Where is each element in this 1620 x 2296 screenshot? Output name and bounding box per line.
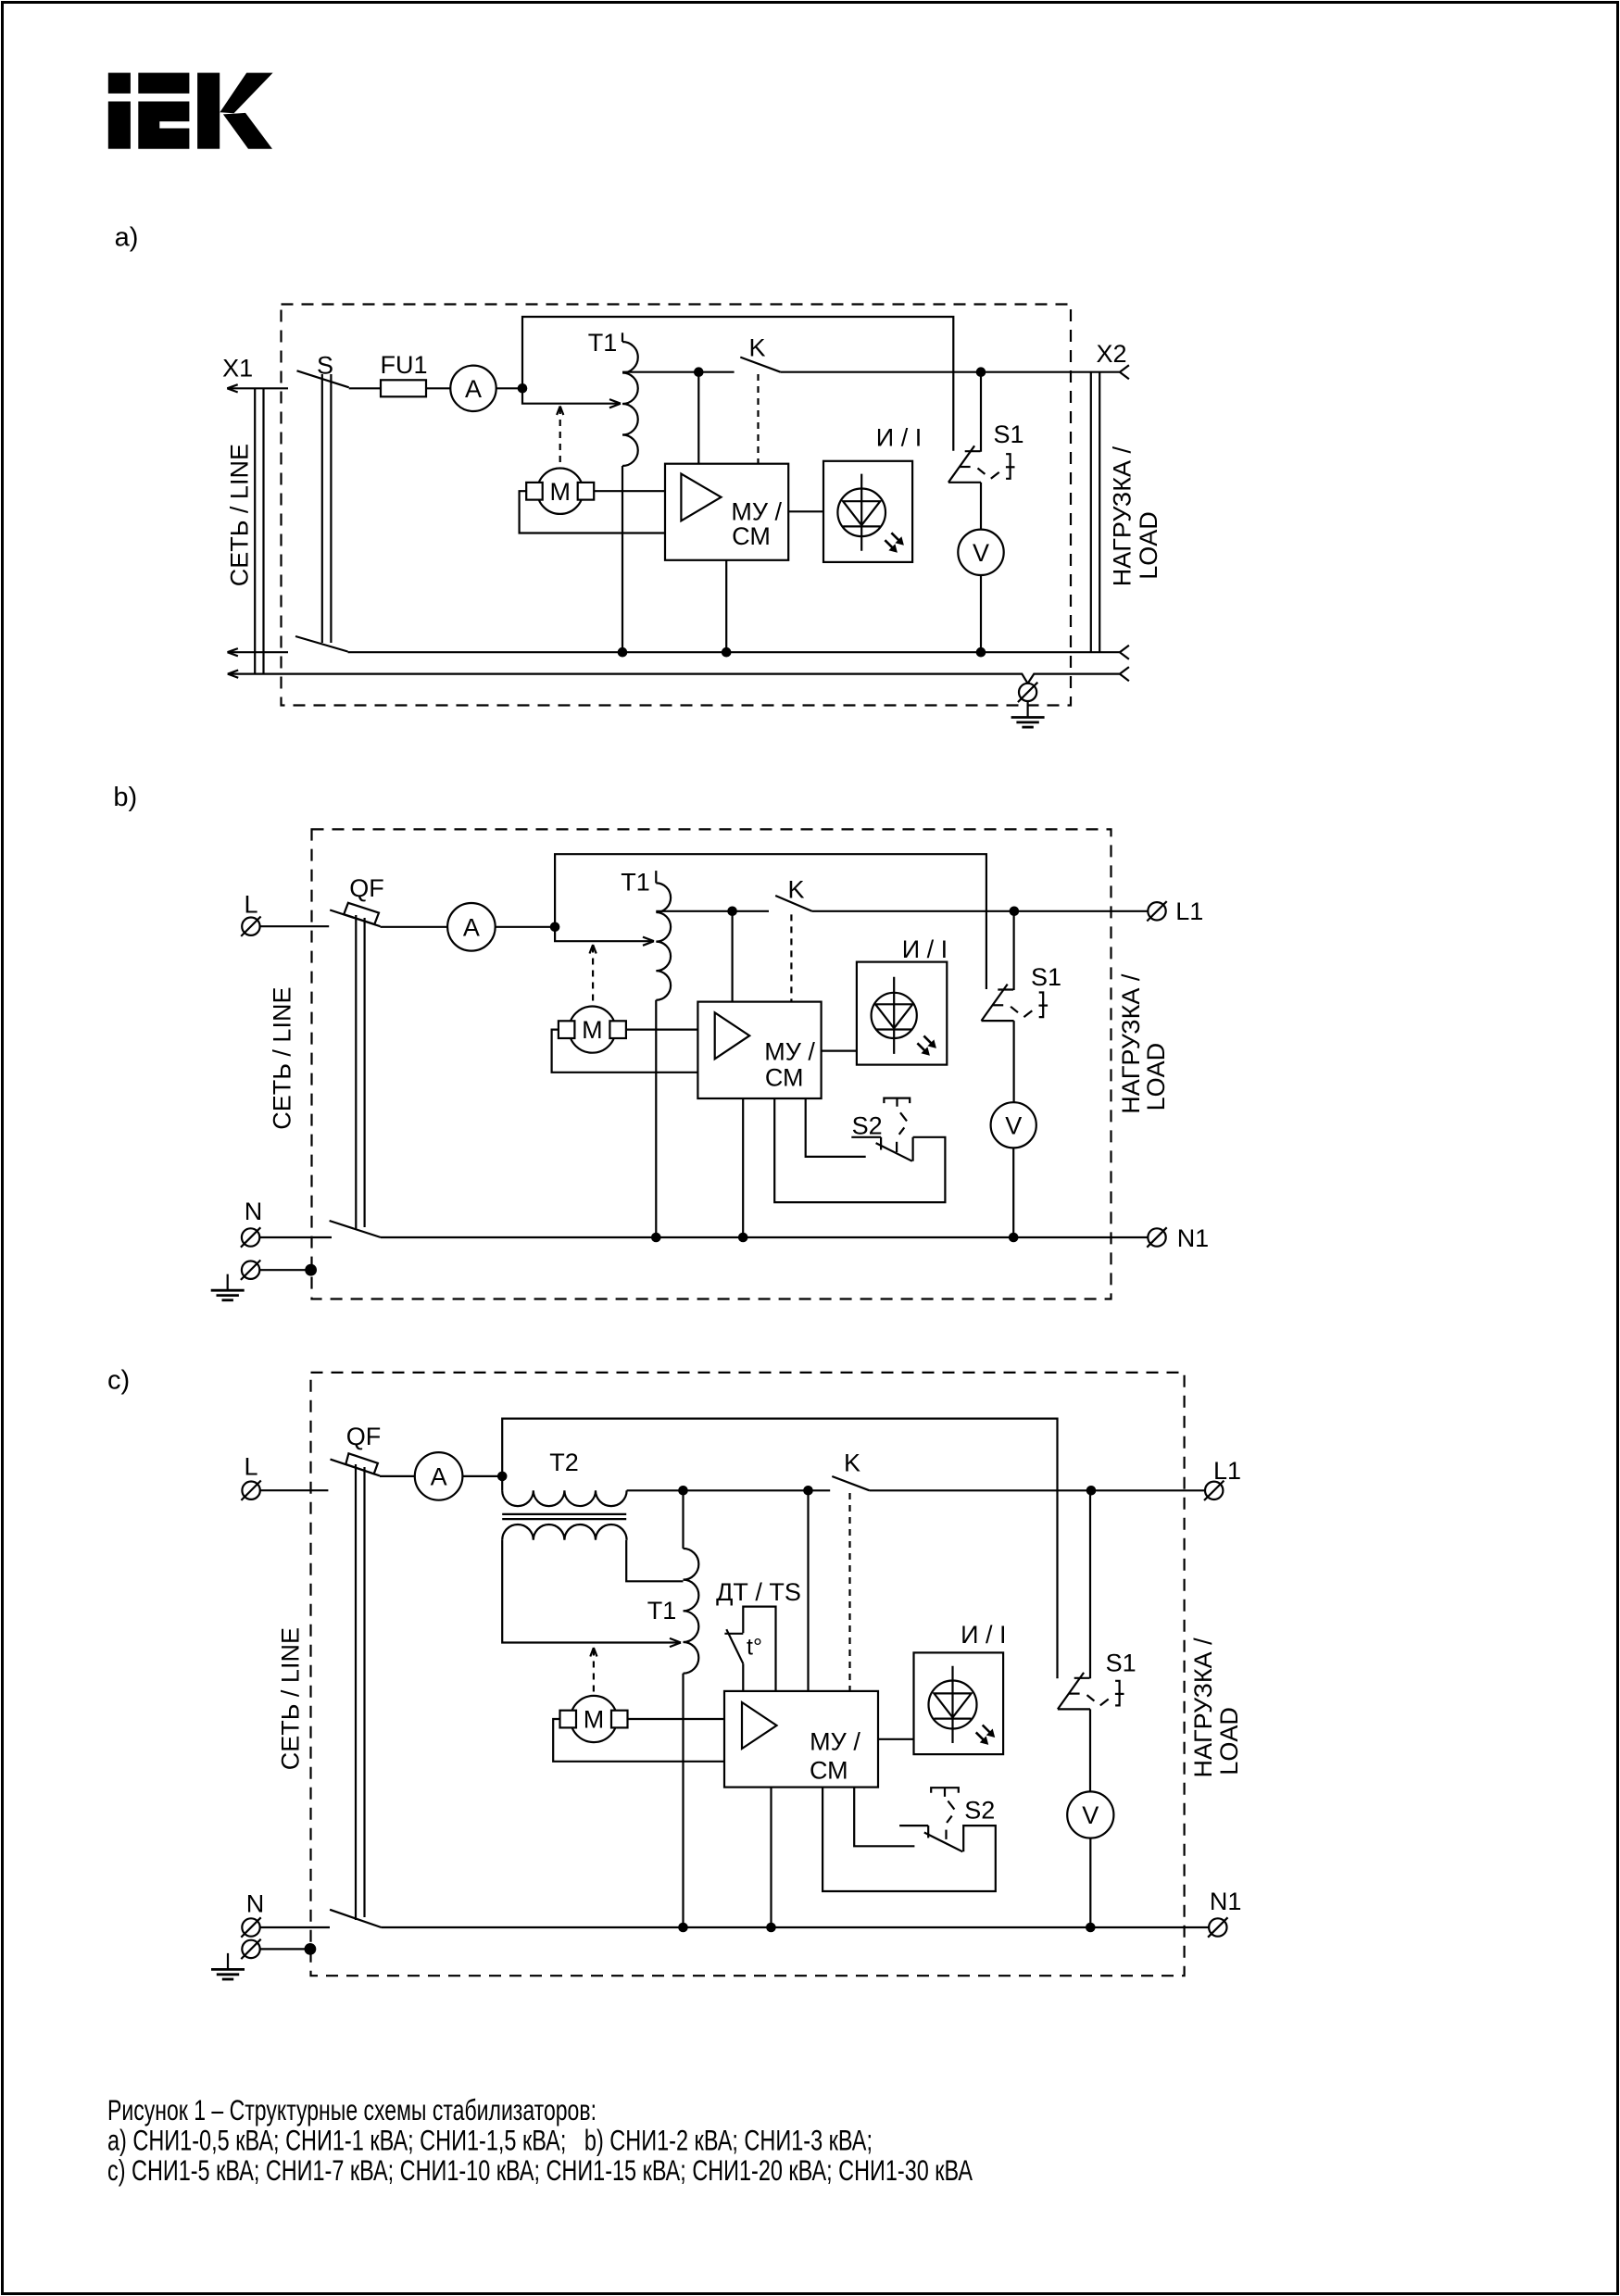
- svg-text:T2: T2: [549, 1449, 579, 1476]
- svg-text:QF: QF: [349, 874, 384, 902]
- svg-text:A: A: [463, 913, 480, 941]
- svg-text:МУ /: МУ /: [810, 1728, 860, 1756]
- svg-text:МУ /: МУ /: [764, 1038, 815, 1066]
- svg-text:Рисунок 1 – Структурные схемы: Рисунок 1 – Структурные схемы стабилизат…: [107, 2093, 597, 2127]
- svg-text:СЕТЬ / LINE: СЕТЬ / LINE: [226, 444, 254, 586]
- svg-text:N: N: [246, 1890, 265, 1918]
- svg-text:T1: T1: [588, 329, 618, 357]
- svg-text:S1: S1: [1031, 963, 1061, 991]
- svg-text:S1: S1: [1106, 1649, 1137, 1676]
- svg-text:И / I: И / I: [876, 424, 922, 452]
- svg-text:СМ: СМ: [765, 1064, 804, 1092]
- svg-text:СМ: СМ: [732, 522, 771, 550]
- svg-text:S2: S2: [964, 1797, 995, 1825]
- svg-text:И / I: И / I: [961, 1621, 1006, 1649]
- svg-text:СЕТЬ / LINE: СЕТЬ / LINE: [269, 987, 296, 1130]
- svg-text:СМ: СМ: [810, 1757, 848, 1785]
- svg-text:S1: S1: [993, 420, 1023, 448]
- svg-text:M: M: [582, 1016, 603, 1044]
- svg-text:A: A: [431, 1463, 447, 1491]
- svg-text:a) СНИ1-0,5 кВА; СНИ1-1 кВА; С: a) СНИ1-0,5 кВА; СНИ1-1 кВА; СНИ1-1,5 кВ…: [107, 2123, 873, 2156]
- svg-text:t°: t°: [747, 1635, 762, 1661]
- svg-text:МУ /: МУ /: [731, 497, 782, 525]
- svg-text:K: K: [787, 876, 804, 904]
- svg-text:c): c): [107, 1366, 130, 1396]
- svg-text:K: K: [844, 1449, 860, 1476]
- svg-text:ДТ / TS: ДТ / TS: [716, 1578, 801, 1606]
- svg-text:V: V: [973, 539, 989, 567]
- svg-text:X2: X2: [1096, 340, 1126, 368]
- svg-text:LOAD: LOAD: [1215, 1707, 1243, 1775]
- svg-text:L1: L1: [1175, 897, 1203, 925]
- svg-text:a): a): [115, 223, 139, 253]
- svg-text:T1: T1: [621, 869, 650, 897]
- svg-text:T1: T1: [647, 1597, 677, 1625]
- svg-text:L: L: [244, 891, 257, 919]
- svg-text:A: A: [465, 375, 482, 403]
- svg-text:N1: N1: [1177, 1224, 1210, 1252]
- svg-text:FU1: FU1: [380, 351, 427, 379]
- svg-text:LOAD: LOAD: [1142, 1043, 1170, 1111]
- svg-text:X1: X1: [222, 355, 253, 383]
- svg-text:L: L: [244, 1452, 257, 1480]
- svg-text:СЕТЬ / LINE: СЕТЬ / LINE: [276, 1627, 304, 1770]
- svg-text:НАГРУЗКА /: НАГРУЗКА /: [1117, 973, 1145, 1114]
- svg-text:M: M: [584, 1706, 605, 1734]
- svg-text:V: V: [1082, 1801, 1099, 1829]
- svg-text:НАГРУЗКА /: НАГРУЗКА /: [1189, 1637, 1217, 1778]
- svg-text:S2: S2: [852, 1112, 883, 1140]
- svg-text:НАГРУЗКА /: НАГРУЗКА /: [1109, 446, 1137, 587]
- svg-text:И / I: И / I: [902, 935, 948, 963]
- svg-text:b): b): [113, 783, 137, 812]
- svg-text:LOAD: LOAD: [1135, 511, 1162, 580]
- svg-text:N1: N1: [1210, 1888, 1242, 1915]
- svg-text:M: M: [549, 478, 571, 506]
- svg-text:c) СНИ1-5 кВА; СНИ1-7 кВА; СНИ: c) СНИ1-5 кВА; СНИ1-7 кВА; СНИ1-10 кВА; …: [107, 2153, 973, 2187]
- svg-text:QF: QF: [346, 1423, 382, 1450]
- svg-text:L1: L1: [1213, 1457, 1241, 1485]
- svg-text:V: V: [1005, 1111, 1022, 1139]
- svg-text:K: K: [748, 334, 765, 362]
- svg-text:N: N: [245, 1198, 263, 1225]
